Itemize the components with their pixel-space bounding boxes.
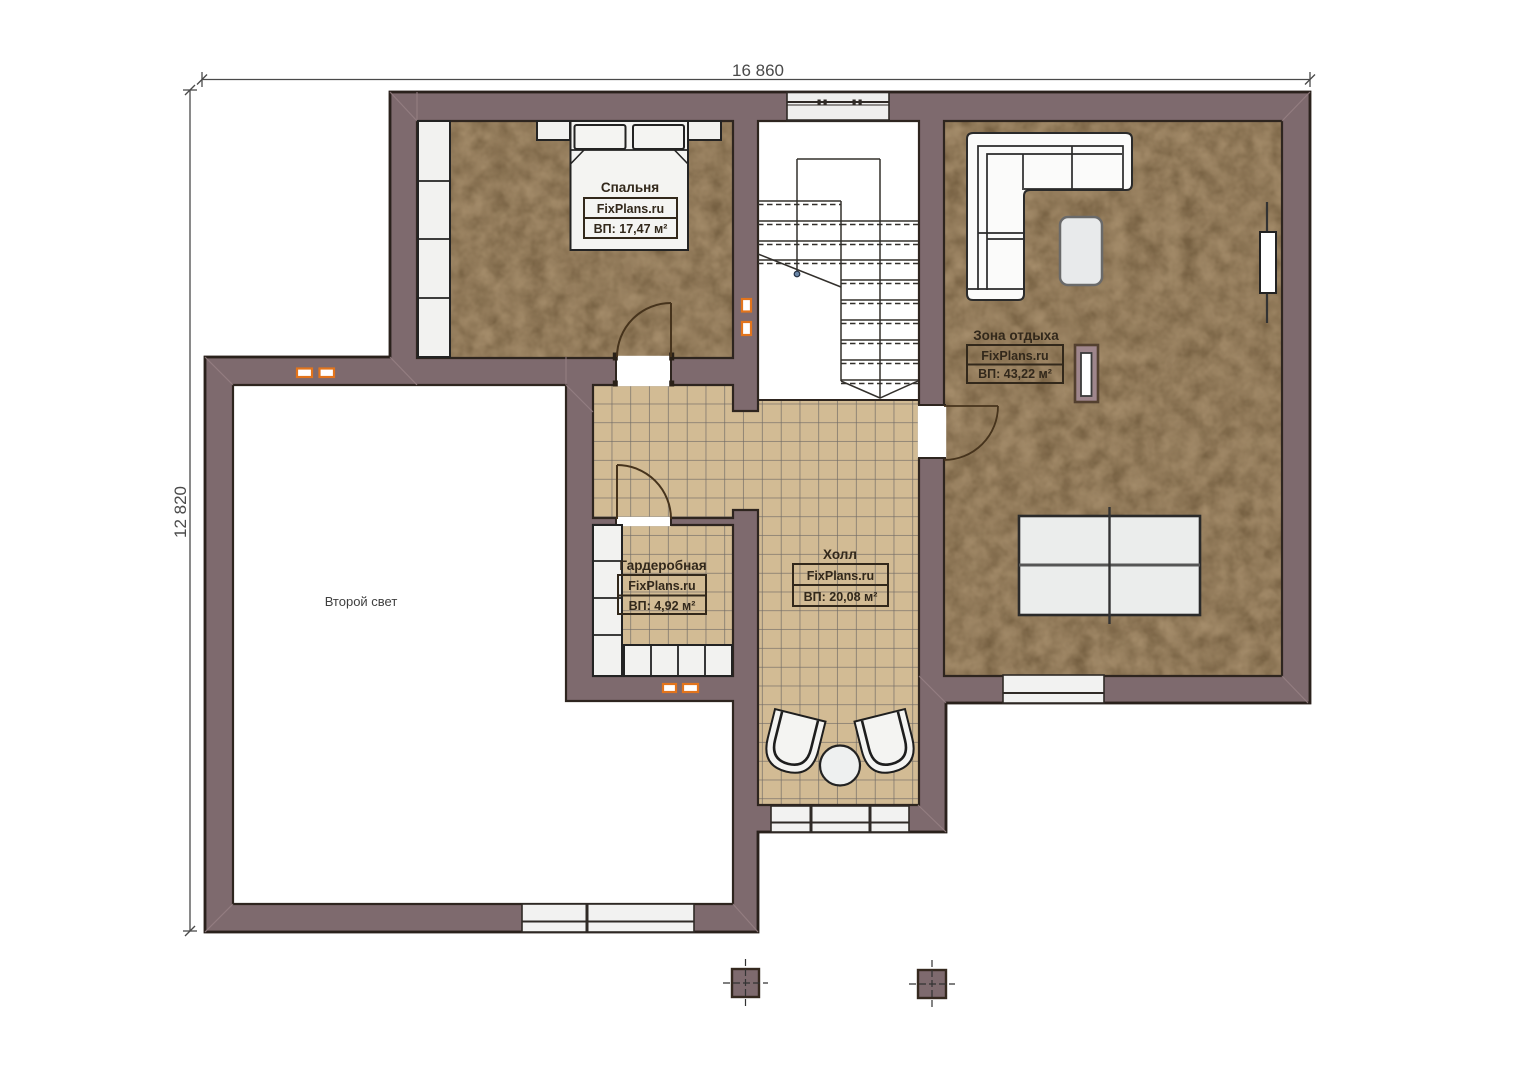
svg-text:Зона отдыха: Зона отдыха	[973, 328, 1059, 343]
svg-text:FixPlans.ru: FixPlans.ru	[628, 579, 695, 593]
svg-text:Холл: Холл	[823, 547, 857, 562]
svg-text:Второй свет: Второй свет	[325, 594, 398, 609]
svg-text:FixPlans.ru: FixPlans.ru	[981, 349, 1048, 363]
svg-text:Гардеробная: Гардеробная	[619, 558, 706, 573]
svg-text:ВП: 17,47 м²: ВП: 17,47 м²	[594, 222, 668, 236]
svg-text:16 860: 16 860	[732, 61, 784, 80]
svg-text:Спальня: Спальня	[601, 180, 659, 195]
svg-text:FixPlans.ru: FixPlans.ru	[597, 202, 664, 216]
svg-text:ВП: 43,22 м²: ВП: 43,22 м²	[978, 367, 1052, 381]
svg-text:ВП: 20,08 м²: ВП: 20,08 м²	[804, 590, 878, 604]
svg-text:12 820: 12 820	[171, 486, 190, 538]
svg-text:ВП: 4,92 м²: ВП: 4,92 м²	[629, 599, 696, 613]
svg-text:FixPlans.ru: FixPlans.ru	[807, 569, 874, 583]
